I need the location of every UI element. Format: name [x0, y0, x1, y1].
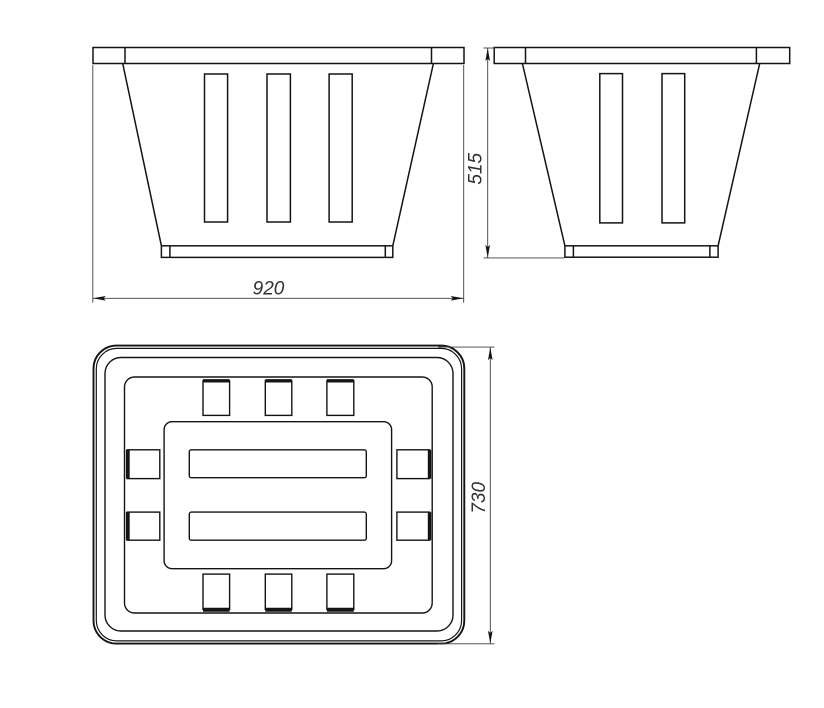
svg-text:730: 730	[469, 482, 490, 514]
svg-text:515: 515	[466, 153, 487, 185]
svg-text:920: 920	[253, 279, 285, 300]
